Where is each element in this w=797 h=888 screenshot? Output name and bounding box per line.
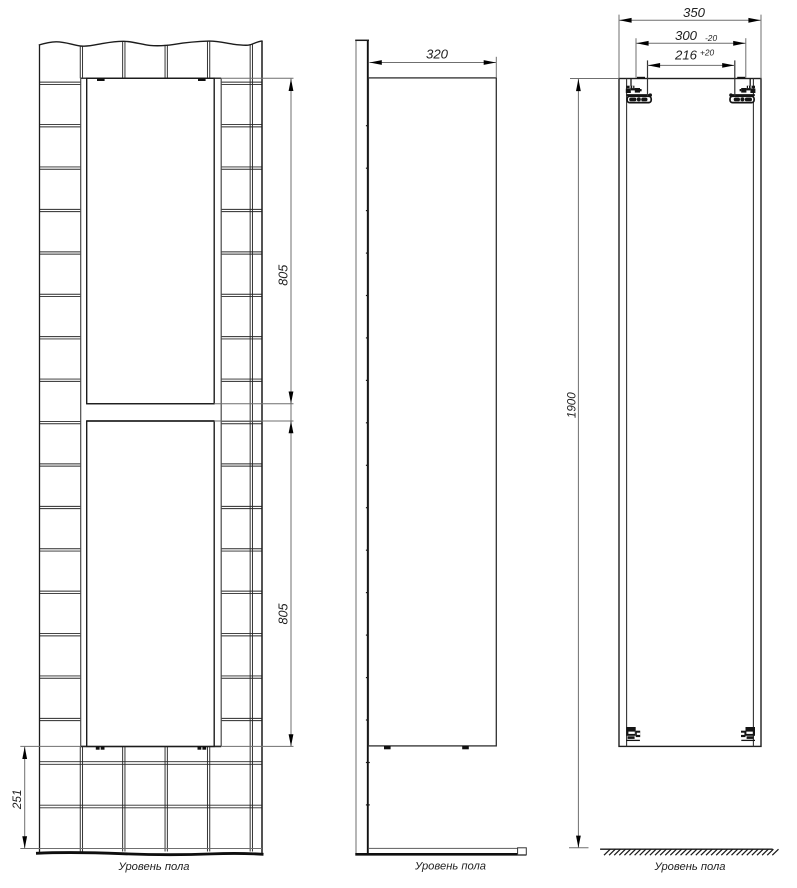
svg-text:350: 350 — [683, 5, 706, 20]
svg-text:Уровень пола: Уровень пола — [414, 861, 486, 873]
svg-text:Уровень пола: Уровень пола — [653, 861, 725, 873]
svg-text:805: 805 — [276, 264, 290, 286]
svg-text:251: 251 — [10, 789, 24, 810]
svg-text:216: 216 — [674, 48, 698, 63]
svg-text:320: 320 — [426, 46, 449, 61]
svg-text:300: 300 — [675, 28, 698, 43]
svg-text:805: 805 — [276, 602, 290, 624]
svg-text:Уровень пола: Уровень пола — [117, 861, 189, 873]
svg-text:1900: 1900 — [566, 392, 579, 418]
svg-text:-20: -20 — [705, 33, 717, 43]
svg-text:+20: +20 — [700, 47, 715, 57]
